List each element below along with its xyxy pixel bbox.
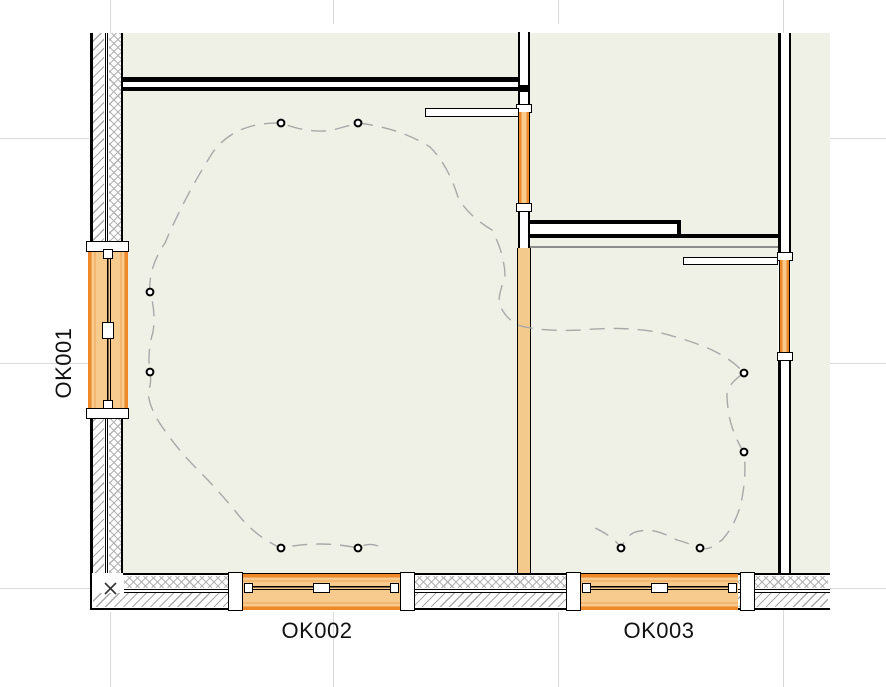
lamp-icon[interactable] xyxy=(697,545,704,552)
floor-plan-canvas: OK001 OK002 OK003 xyxy=(0,0,886,687)
lamp-icon[interactable] xyxy=(355,545,362,552)
lamp-icon[interactable] xyxy=(278,120,285,127)
cable-route-path[interactable] xyxy=(148,123,745,549)
lamp-icon[interactable] xyxy=(741,370,748,377)
lamp-icon[interactable] xyxy=(355,120,362,127)
lamp-icon[interactable] xyxy=(741,449,748,456)
lamp-icon[interactable] xyxy=(278,545,285,552)
lamp-icon[interactable] xyxy=(618,545,625,552)
lamp-icon[interactable] xyxy=(147,289,154,296)
annotation-overlay xyxy=(0,0,886,687)
corner-marker-icon xyxy=(105,583,116,594)
lamp-icon[interactable] xyxy=(147,369,154,376)
